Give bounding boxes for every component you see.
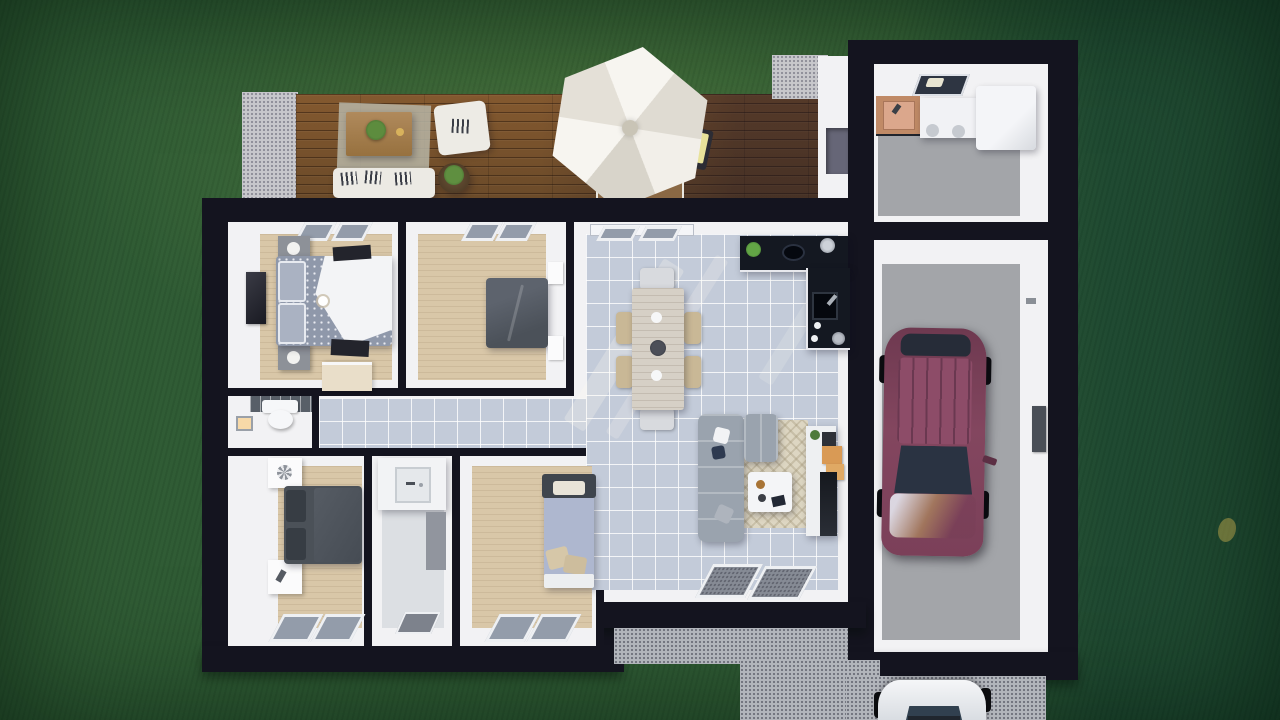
house-wall-top [202,198,872,224]
pillow-icon [286,528,306,560]
dining-chair [616,356,633,388]
plate-icon [651,370,662,381]
nightstand [268,560,302,594]
lamp-icon [275,569,286,582]
house-wall-bottom-living [598,602,866,628]
partition [226,388,574,396]
plant-pot-icon [810,430,820,440]
pillow-icon [563,554,588,576]
duvet-fold [314,488,360,562]
wall-light-icon [236,416,253,431]
wing-wall-left [848,40,874,680]
car-body [878,680,986,720]
cup-icon [758,494,766,502]
wall-shelf [548,262,563,284]
dryer-door-icon [952,125,965,138]
car-roof-trim [908,716,960,720]
lamp-icon [287,351,300,364]
deck-sofa [333,168,435,198]
lamp-icon [287,242,300,255]
dining-chair [684,312,701,344]
pillow-icon [286,490,306,522]
concrete-pad-left [242,92,298,200]
drain-icon [419,483,423,487]
vanity [378,458,446,510]
bedroom3-bed [284,486,362,564]
sofa-pillow-icon [711,445,726,460]
striped-cushion-icon [340,171,357,186]
partition [398,220,406,394]
pillow-icon [278,261,306,302]
partition [566,220,574,394]
bed-decor [318,296,328,306]
dining-table [632,288,684,410]
wing-wall-top [848,40,1078,64]
partition [226,448,604,456]
wall-tv-icon [246,272,266,324]
house-wall-bottom-left [202,646,622,672]
master-bed [276,256,392,346]
bedside-rug [331,339,370,357]
decor-art-icon [277,465,292,480]
toilet-bowl-icon [268,410,293,429]
plate-icon [651,312,662,323]
bedroom4-bed [544,476,594,588]
knob-icon [811,335,818,342]
nightstand [268,458,302,488]
striped-cushion-icon [395,171,412,185]
bedroom2-bed [486,278,548,348]
storage-box [822,446,842,464]
car-hood [889,493,976,538]
faucet-icon [406,482,415,485]
pillow-icon [278,303,306,344]
garage-wall-panel [1032,406,1046,452]
wing-wall-divider [848,222,1078,240]
flat-tv-icon [820,472,837,536]
dining-chair [684,356,701,388]
nightstand [278,344,310,370]
parasol-hub-icon [621,119,639,137]
car-body [881,327,987,557]
striped-cushion-icon [364,170,381,184]
duvet-fold [507,284,524,341]
centerpiece-icon [650,340,666,356]
plant-pot-icon [444,165,464,185]
hob-icon [782,244,805,261]
pot-icon [832,332,845,345]
pastry-icon [756,480,765,489]
wing-wall-right [1048,40,1078,680]
house-wall-left [202,198,228,672]
hallway-floor [319,398,586,448]
car-roof [897,357,972,444]
knob-icon [814,322,821,329]
car-driveway [872,680,992,720]
storage-unit [976,86,1036,150]
aerial-floorplan-scene [0,0,1280,720]
washer-door-icon [926,124,939,137]
washer-dryer [920,98,976,138]
car-garage [878,327,990,557]
gravel-path [614,628,848,664]
deck-armchair [433,100,491,156]
partition [364,456,372,648]
plant-pot-icon [366,120,386,140]
sofa-chaise [744,414,778,462]
sink-icon [395,467,431,503]
deck-table-decor [396,128,404,136]
dining-end-chair [640,408,674,430]
book-icon [771,495,786,507]
pot-icon [820,238,835,253]
garage-wall-mark [1026,298,1036,304]
car-rear-window [901,333,971,356]
partition [452,456,460,648]
master-closet [322,362,372,391]
striped-cushion-icon [451,119,469,134]
headboard-cushion [553,481,585,495]
utility-sink-counter [876,96,920,134]
footboard-bench [544,574,594,588]
shower-wall [426,512,446,570]
partition [312,396,319,452]
wall-shelf [548,336,563,360]
dining-chair [616,312,633,344]
bedside-rug [333,245,372,262]
kitchen-plant-icon [746,242,761,257]
deck-wall-window [826,128,848,174]
dining-end-chair [640,268,674,290]
coffee-table [748,472,792,512]
skylight-icon [912,74,970,96]
car-windshield [894,445,973,494]
